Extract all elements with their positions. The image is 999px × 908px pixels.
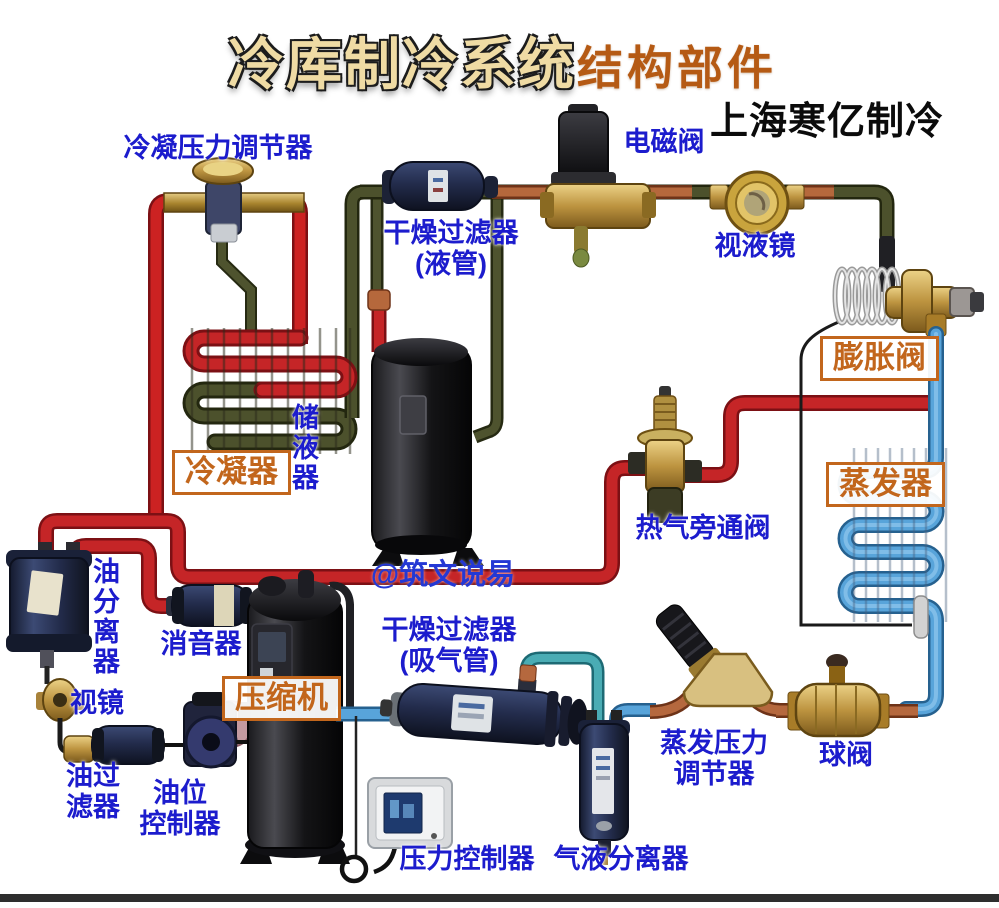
label-oil-sight-glass: 视镜 xyxy=(70,688,124,719)
label-solenoid-valve: 电磁阀 xyxy=(624,127,705,158)
watermark: @筑文说易 xyxy=(371,551,515,593)
evaporator-coil xyxy=(846,334,947,709)
condensing-pressure-regulator-valve xyxy=(164,158,304,334)
label-liquid-filter-drier: 干燥过滤器 (液管) xyxy=(384,218,519,281)
label-condensing-pressure-regulator: 冷凝压力调节器 xyxy=(124,133,313,164)
oil-filter xyxy=(60,718,164,764)
liquid-sight-glass xyxy=(710,172,804,234)
bottom-border xyxy=(0,894,999,902)
label-condenser: 冷凝器 xyxy=(172,450,291,495)
label-pressure-controller: 压力控制器 xyxy=(400,844,535,875)
label-oil-filter: 油过 滤器 xyxy=(66,761,120,824)
label-compressor: 压缩机 xyxy=(222,676,341,721)
label-hot-gas-bypass-valve: 热气旁通阀 xyxy=(636,513,771,544)
refrigeration-diagram: 冷库制冷系统 结构部件 上海寒亿制冷 @筑文说易 冷凝压力调节器 电磁阀 干燥过… xyxy=(0,0,999,908)
label-oil-separator: 油分离器 xyxy=(90,557,117,677)
label-ball-valve: 球阀 xyxy=(819,740,873,771)
label-evaporator: 蒸发器 xyxy=(826,462,945,507)
muffler xyxy=(166,585,252,626)
label-suction-filter-drier: 干燥过滤器 (吸气管) xyxy=(382,615,517,678)
label-liquid-sight-glass: 视液镜 xyxy=(715,231,796,262)
hot-gas-bypass-valve xyxy=(628,386,702,522)
evap-pressure-regulator xyxy=(650,599,772,706)
label-receiver: 储液器 xyxy=(289,403,316,493)
sensing-bulb xyxy=(914,596,928,638)
ball-valve xyxy=(788,654,889,736)
brand-name: 上海寒亿制冷 xyxy=(710,90,944,145)
oil-separator xyxy=(6,542,92,668)
label-muffler: 消音器 xyxy=(161,629,242,660)
label-gas-liquid-separator: 气液分离器 xyxy=(554,844,689,875)
expansion-valve xyxy=(801,236,984,625)
gas-liquid-separator xyxy=(578,710,630,865)
liquid-filter-drier xyxy=(382,162,498,210)
label-oil-level-controller: 油位 控制器 xyxy=(140,778,221,841)
page-subtitle: 结构部件 xyxy=(577,32,777,98)
label-expansion-valve: 膨胀阀 xyxy=(820,336,939,381)
page-title: 冷库制冷系统 xyxy=(228,20,576,101)
label-evap-pressure-regulator: 蒸发压力 调节器 xyxy=(660,728,768,791)
